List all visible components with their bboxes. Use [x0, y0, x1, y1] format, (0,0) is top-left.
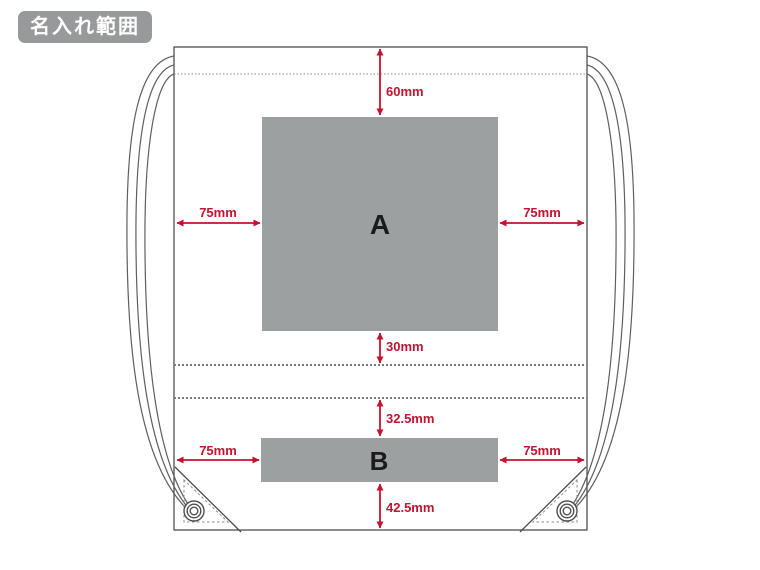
left-grommet-icon: [184, 501, 204, 521]
dimension-b-left: 75mm: [177, 443, 259, 460]
dimension-a-bottom-label: 30mm: [386, 339, 424, 354]
dimension-b-top: 32.5mm: [380, 400, 434, 436]
dimension-b-bottom: 42.5mm: [380, 484, 434, 528]
dimension-a-left: 75mm: [177, 205, 260, 223]
dimension-a-right-label: 75mm: [523, 205, 561, 220]
right-drawstring-cords: [568, 56, 634, 511]
print-area-badge-label: 名入れ範囲: [30, 16, 140, 38]
page-root: { "badge": { "label": "名入れ範囲" }, "diagra…: [0, 0, 760, 570]
dimension-a-top-label: 60mm: [386, 84, 424, 99]
print-area-a-label: A: [370, 209, 390, 240]
dimension-b-right-label: 75mm: [523, 443, 561, 458]
drawstring-bag-print-area-diagram: A B 60mm 75mm 75mm 30mm 32.5mm 75mm 75mm…: [0, 0, 760, 570]
print-area-badge: 名入れ範囲: [18, 11, 152, 43]
left-drawstring-cords: [127, 56, 193, 511]
dimension-b-bottom-label: 42.5mm: [386, 500, 434, 515]
right-grommet-icon: [557, 501, 577, 521]
dimension-a-bottom: 30mm: [380, 333, 424, 363]
dimension-b-right: 75mm: [500, 443, 584, 460]
dimension-a-right: 75mm: [500, 205, 584, 223]
dimension-a-left-label: 75mm: [199, 205, 237, 220]
dimension-a-top: 60mm: [380, 49, 424, 115]
print-area-b-label: B: [370, 446, 389, 476]
dimension-b-top-label: 32.5mm: [386, 411, 434, 426]
dimension-b-left-label: 75mm: [199, 443, 237, 458]
